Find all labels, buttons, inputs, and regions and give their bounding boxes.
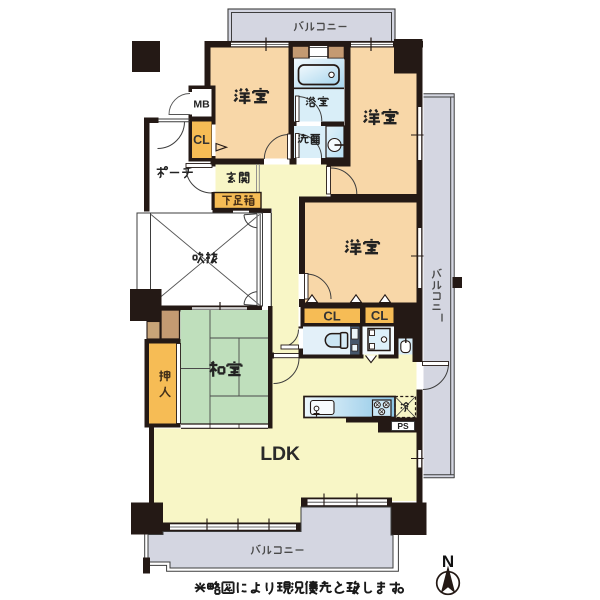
svg-text:CL: CL xyxy=(323,309,340,324)
svg-text:LDK: LDK xyxy=(260,443,300,465)
svg-text:CL: CL xyxy=(193,133,210,147)
svg-text:MB: MB xyxy=(193,99,210,111)
svg-text:CL: CL xyxy=(371,308,388,323)
svg-text:PS: PS xyxy=(397,421,409,431)
